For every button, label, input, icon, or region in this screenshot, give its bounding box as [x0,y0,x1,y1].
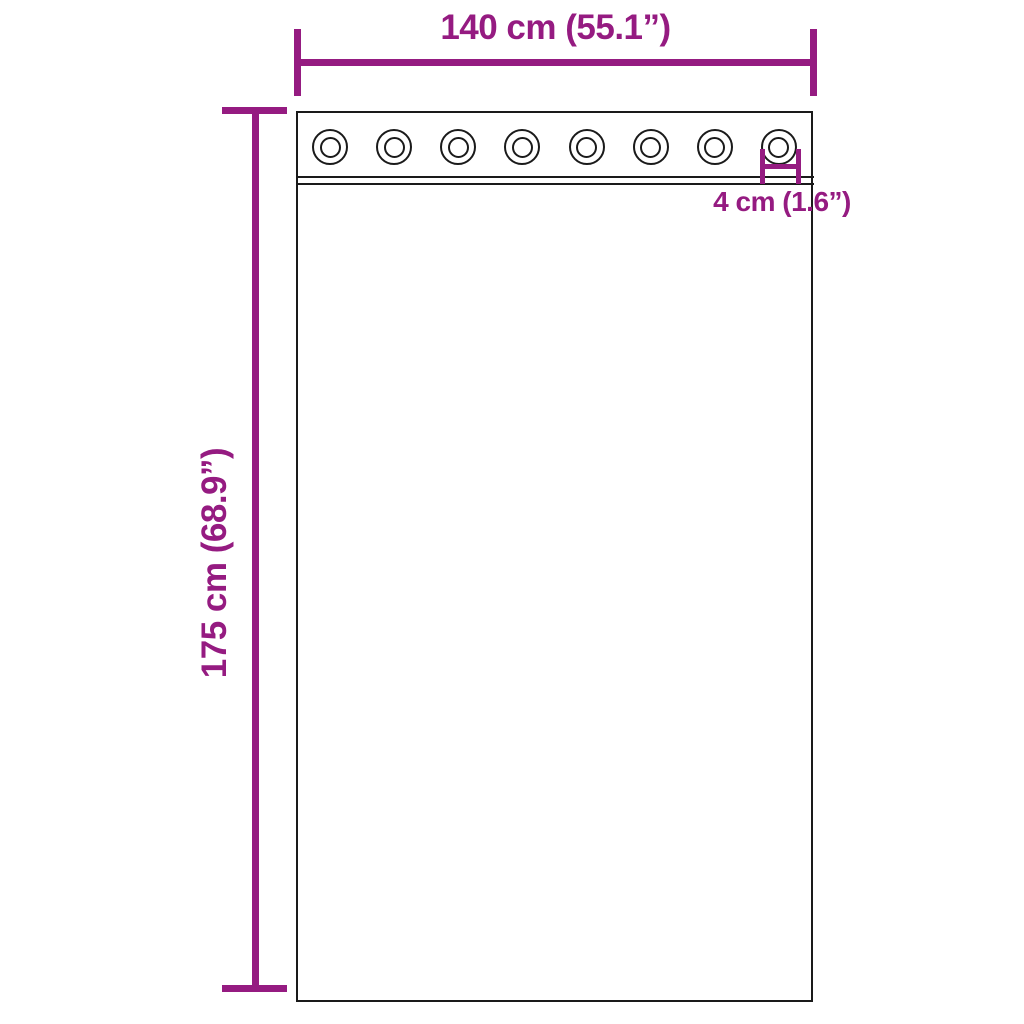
grommet [504,129,540,165]
width-dimension-label: 140 cm (55.1”) [297,8,814,48]
width-dimension-line [297,59,814,66]
grommet-band [312,129,797,165]
curtain-panel [296,111,813,1002]
grommet-inner-ring [448,137,469,158]
grommet-inner-ring [704,137,725,158]
band-stitch-line [296,176,814,185]
height-dimension-line [252,110,259,991]
grommet-inner-ring [384,137,405,158]
curtain-dimension-diagram: 140 cm (55.1”) 175 cm (68.9”) 4 cm (1.6”… [0,0,1024,1024]
grommet-inner-ring [576,137,597,158]
grommet-dimension-bracket [760,149,801,184]
grommet [697,129,733,165]
grommet-inner-ring [320,137,341,158]
height-dimension-tick-top [222,107,287,114]
height-dimension-label: 175 cm (68.9”) [195,448,235,678]
grommet-inner-ring [640,137,661,158]
grommet-dimension-label: 4 cm (1.6”) [713,186,851,218]
grommet [633,129,669,165]
grommet [376,129,412,165]
grommet [569,129,605,165]
grommet-inner-ring [512,137,533,158]
grommet [440,129,476,165]
grommet [312,129,348,165]
grommet-dimension-bracket-bar [765,164,796,169]
height-dimension-tick-bottom [222,985,287,992]
